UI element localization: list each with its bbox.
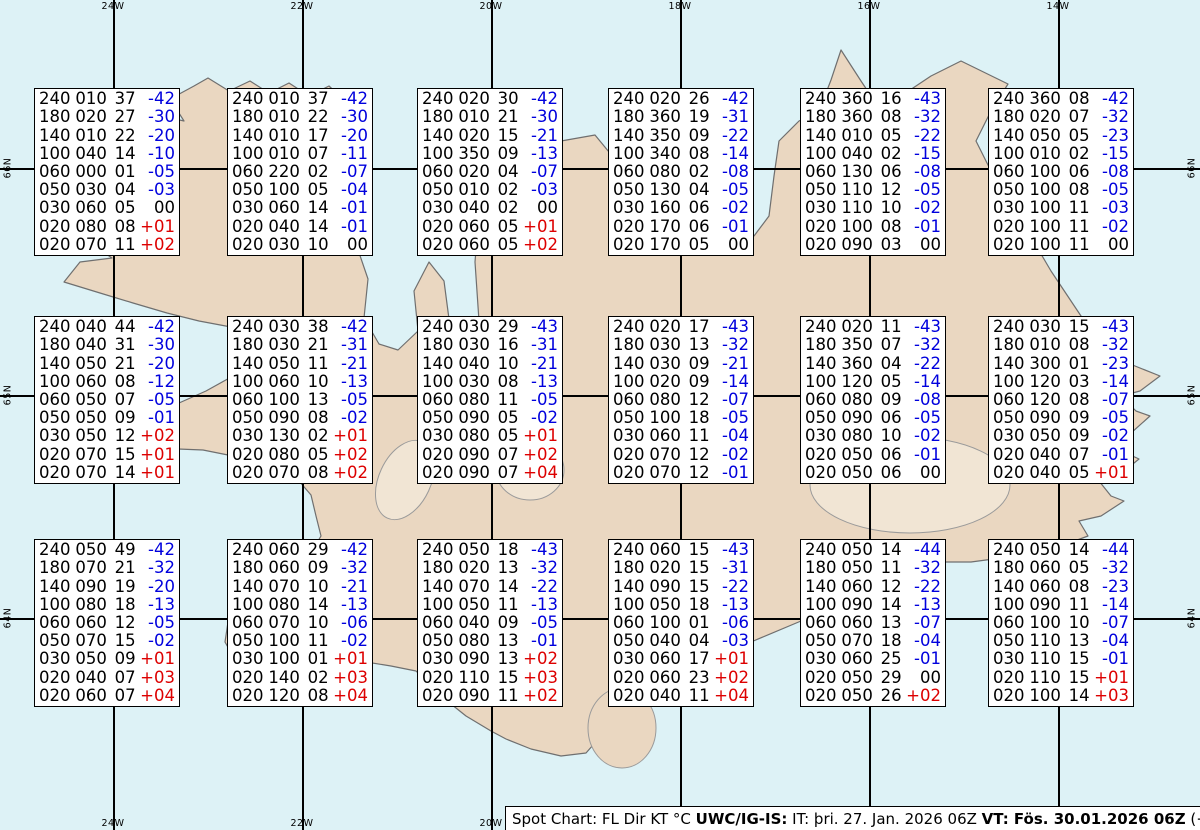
wind-speed-kt: 13 <box>305 391 329 409</box>
flight-level: 140 <box>39 578 72 596</box>
spot-row: 02009007+04 <box>422 464 558 482</box>
spot-row: 02007012-02 <box>613 446 749 464</box>
wind-speed-kt: 11 <box>1066 236 1090 254</box>
wind-direction: 090 <box>268 409 301 427</box>
spot-row: 14006012-22 <box>805 578 941 596</box>
wind-speed-kt: 15 <box>1066 650 1090 668</box>
temperature-c: 00 <box>905 464 941 482</box>
spot-row: 18005011-32 <box>805 559 941 577</box>
wind-speed-kt: 08 <box>1066 578 1090 596</box>
flight-level: 030 <box>613 199 646 217</box>
wind-speed-kt: 09 <box>1066 409 1090 427</box>
spot-row: 14007010-21 <box>232 578 368 596</box>
flight-level: 060 <box>232 614 265 632</box>
spot-row: 05007018-04 <box>805 632 941 650</box>
temperature-c: -02 <box>332 409 368 427</box>
spot-row: 06012008-07 <box>993 391 1129 409</box>
spot-row: 02006023+02 <box>613 669 749 687</box>
spot-row: 18036008-32 <box>805 108 941 126</box>
spot-row: 05009009-05 <box>993 409 1129 427</box>
wind-direction: 080 <box>458 391 491 409</box>
wind-direction: 170 <box>649 236 682 254</box>
spot-row: 05001002-03 <box>422 181 558 199</box>
flight-level: 100 <box>993 145 1026 163</box>
spot-row: 24004044-42 <box>39 318 175 336</box>
temperature-c: -30 <box>332 108 368 126</box>
flight-level: 140 <box>422 355 455 373</box>
wind-speed-kt: 06 <box>878 446 902 464</box>
wind-direction: 070 <box>649 464 682 482</box>
spot-row: 14005005-23 <box>993 127 1129 145</box>
spot-row: 02005006-01 <box>805 446 941 464</box>
wind-direction: 070 <box>458 578 491 596</box>
wind-speed-kt: 19 <box>112 578 136 596</box>
wind-direction: 060 <box>268 559 301 577</box>
wind-speed-kt: 01 <box>1066 355 1090 373</box>
spot-row: 05010018-05 <box>613 409 749 427</box>
spot-row: 24002017-43 <box>613 318 749 336</box>
spot-box-r3-c2: 24006029-4218006009-3214007010-211000801… <box>227 539 373 707</box>
spot-box-r3-c1: 24005049-4218007021-3214009019-201000801… <box>34 539 180 707</box>
wind-speed-kt: 11 <box>112 236 136 254</box>
spot-row: 02007011+02 <box>39 236 175 254</box>
wind-speed-kt: 15 <box>686 578 710 596</box>
wind-direction: 350 <box>458 145 491 163</box>
footer-segment-1: Spot Chart: FL Dir KT °C <box>512 810 696 828</box>
wind-speed-kt: 07 <box>1066 108 1090 126</box>
spot-row: 02011015+03 <box>422 669 558 687</box>
spot-row: 05009006-05 <box>805 409 941 427</box>
wind-speed-kt: 06 <box>686 199 710 217</box>
wind-speed-kt: 08 <box>305 687 329 705</box>
flight-level: 180 <box>993 559 1026 577</box>
temperature-c: +01 <box>139 446 175 464</box>
spot-box-r1-c6: 24036008-4218002007-3214005005-231000100… <box>988 88 1134 256</box>
wind-direction: 070 <box>75 559 108 577</box>
wind-direction: 110 <box>1029 669 1062 687</box>
temperature-c: -04 <box>1093 632 1129 650</box>
spot-row: 24003015-43 <box>993 318 1129 336</box>
flight-level: 100 <box>613 145 646 163</box>
flight-level: 180 <box>422 336 455 354</box>
wind-speed-kt: 07 <box>1066 446 1090 464</box>
wind-speed-kt: 05 <box>1066 559 1090 577</box>
wind-speed-kt: 21 <box>112 559 136 577</box>
footer-segment-2: UWC/IG-IS: <box>696 810 788 828</box>
wind-direction: 060 <box>1029 559 1062 577</box>
wind-speed-kt: 10 <box>495 355 519 373</box>
temperature-c: -21 <box>522 355 558 373</box>
wind-speed-kt: 29 <box>305 541 329 559</box>
spot-row: 02008005+02 <box>232 446 368 464</box>
spot-row: 18002013-32 <box>422 559 558 577</box>
wind-speed-kt: 13 <box>495 650 519 668</box>
wind-direction: 010 <box>841 127 874 145</box>
temperature-c: -07 <box>1093 614 1129 632</box>
flight-level: 180 <box>422 108 455 126</box>
temperature-c: -43 <box>713 318 749 336</box>
wind-speed-kt: 14 <box>878 596 902 614</box>
spot-row: 18006009-32 <box>232 559 368 577</box>
temperature-c: -32 <box>332 559 368 577</box>
temperature-c: -42 <box>139 541 175 559</box>
wind-speed-kt: 05 <box>495 409 519 427</box>
temperature-c: -43 <box>522 318 558 336</box>
spot-row: 02006005+02 <box>422 236 558 254</box>
spot-row: 24005049-42 <box>39 541 175 559</box>
flight-level: 100 <box>993 596 1026 614</box>
flight-level: 050 <box>39 409 72 427</box>
wind-speed-kt: 21 <box>495 108 519 126</box>
flight-level: 030 <box>39 650 72 668</box>
wind-direction: 130 <box>841 163 874 181</box>
spot-row: 03006017+01 <box>613 650 749 668</box>
flight-level: 180 <box>39 336 72 354</box>
wind-speed-kt: 10 <box>305 578 329 596</box>
spot-box-r3-c5: 24005014-4418005011-3214006012-221000901… <box>800 539 946 707</box>
spot-box-r2-c4: 24002017-4318003013-3214003009-211000200… <box>608 316 754 484</box>
temperature-c: +01 <box>332 427 368 445</box>
wind-direction: 080 <box>649 163 682 181</box>
wind-direction: 080 <box>649 391 682 409</box>
wind-direction: 090 <box>458 409 491 427</box>
wind-speed-kt: 15 <box>112 446 136 464</box>
temperature-c: -43 <box>522 541 558 559</box>
temperature-c: -05 <box>522 391 558 409</box>
temperature-c: +01 <box>522 427 558 445</box>
flight-level: 020 <box>613 236 646 254</box>
flight-level: 030 <box>422 199 455 217</box>
wind-direction: 010 <box>268 145 301 163</box>
wind-speed-kt: 44 <box>112 318 136 336</box>
spot-row: 03005009+01 <box>39 650 175 668</box>
wind-speed-kt: 09 <box>112 650 136 668</box>
flight-level: 180 <box>613 559 646 577</box>
wind-direction: 080 <box>268 596 301 614</box>
spot-row: 24006015-43 <box>613 541 749 559</box>
wind-speed-kt: 02 <box>878 145 902 163</box>
temperature-c: +02 <box>522 236 558 254</box>
wind-direction: 110 <box>1029 632 1062 650</box>
wind-speed-kt: 13 <box>878 614 902 632</box>
spot-row: 06010013-05 <box>232 391 368 409</box>
wind-speed-kt: 01 <box>686 614 710 632</box>
spot-row: 02004007-01 <box>993 446 1129 464</box>
flight-level: 020 <box>422 669 455 687</box>
temperature-c: -04 <box>713 427 749 445</box>
wind-speed-kt: 05 <box>1066 464 1090 482</box>
wind-speed-kt: 11 <box>878 318 902 336</box>
flight-level: 020 <box>232 446 265 464</box>
wind-direction: 070 <box>75 464 108 482</box>
spot-row: 14001017-20 <box>232 127 368 145</box>
temperature-c: -10 <box>139 145 175 163</box>
temperature-c: -20 <box>139 578 175 596</box>
spot-row: 10001007-11 <box>232 145 368 163</box>
temperature-c: -32 <box>1093 559 1129 577</box>
flight-level: 100 <box>422 373 455 391</box>
wind-direction: 100 <box>268 632 301 650</box>
spot-row: 10012003-14 <box>993 373 1129 391</box>
temperature-c: -03 <box>139 181 175 199</box>
temperature-c: -21 <box>713 355 749 373</box>
wind-direction: 050 <box>649 596 682 614</box>
wind-speed-kt: 04 <box>686 632 710 650</box>
spot-row: 18001008-32 <box>993 336 1129 354</box>
flight-level: 020 <box>993 218 1026 236</box>
flight-level: 030 <box>422 427 455 445</box>
spot-row: 24005014-44 <box>805 541 941 559</box>
temperature-c: -07 <box>522 163 558 181</box>
top-longitude-label-24W: 24W <box>102 1 125 12</box>
wind-direction: 020 <box>1029 108 1062 126</box>
flight-level: 020 <box>993 446 1026 464</box>
wind-direction: 060 <box>75 687 108 705</box>
flight-level: 050 <box>232 632 265 650</box>
temperature-c: -22 <box>905 578 941 596</box>
temperature-c: -01 <box>713 464 749 482</box>
spot-row: 10008014-13 <box>232 596 368 614</box>
flight-level: 240 <box>805 90 838 108</box>
spot-row: 10005018-13 <box>613 596 749 614</box>
temperature-c: +02 <box>522 687 558 705</box>
wind-speed-kt: 02 <box>305 163 329 181</box>
wind-direction: 040 <box>458 355 491 373</box>
wind-speed-kt: 25 <box>878 650 902 668</box>
temperature-c: -13 <box>332 596 368 614</box>
wind-speed-kt: 12 <box>686 391 710 409</box>
wind-direction: 020 <box>649 90 682 108</box>
flight-level: 020 <box>232 236 265 254</box>
wind-speed-kt: 49 <box>112 541 136 559</box>
wind-direction: 050 <box>75 409 108 427</box>
temperature-c: -14 <box>713 145 749 163</box>
temperature-c: -14 <box>905 373 941 391</box>
temperature-c: -22 <box>905 355 941 373</box>
wind-direction: 100 <box>1029 163 1062 181</box>
wind-speed-kt: 26 <box>878 687 902 705</box>
spot-row: 02010008-01 <box>805 218 941 236</box>
flight-level: 060 <box>613 391 646 409</box>
wind-speed-kt: 23 <box>686 669 710 687</box>
wind-direction: 060 <box>649 650 682 668</box>
spot-box-r2-c5: 24002011-4318035007-3214036004-221001200… <box>800 316 946 484</box>
flight-level: 020 <box>422 446 455 464</box>
flight-level: 050 <box>232 409 265 427</box>
spot-row: 18002015-31 <box>613 559 749 577</box>
wind-speed-kt: 08 <box>305 464 329 482</box>
wind-direction: 140 <box>268 669 301 687</box>
wind-direction: 090 <box>841 409 874 427</box>
flight-level: 020 <box>805 669 838 687</box>
flight-level: 020 <box>232 218 265 236</box>
wind-speed-kt: 11 <box>305 355 329 373</box>
flight-level: 100 <box>39 596 72 614</box>
wind-speed-kt: 10 <box>878 427 902 445</box>
temperature-c: +02 <box>522 650 558 668</box>
wind-direction: 090 <box>649 578 682 596</box>
flight-level: 140 <box>613 355 646 373</box>
temperature-c: -01 <box>139 409 175 427</box>
wind-speed-kt: 06 <box>1066 163 1090 181</box>
wind-speed-kt: 07 <box>112 669 136 687</box>
temperature-c: -12 <box>139 373 175 391</box>
wind-speed-kt: 05 <box>878 127 902 145</box>
wind-direction: 020 <box>458 163 491 181</box>
wind-direction: 000 <box>75 163 108 181</box>
temperature-c: -22 <box>713 578 749 596</box>
wind-speed-kt: 11 <box>1066 596 1090 614</box>
flight-level: 180 <box>232 108 265 126</box>
flight-level: 030 <box>993 427 1026 445</box>
wind-speed-kt: 05 <box>112 199 136 217</box>
spot-row: 06006013-07 <box>805 614 941 632</box>
wind-speed-kt: 08 <box>686 145 710 163</box>
wind-speed-kt: 31 <box>112 336 136 354</box>
spot-row: 14007014-22 <box>422 578 558 596</box>
spot-row: 02006005+01 <box>422 218 558 236</box>
wind-direction: 020 <box>649 373 682 391</box>
temperature-c: +02 <box>332 446 368 464</box>
temperature-c: -23 <box>1093 127 1129 145</box>
temperature-c: -13 <box>522 373 558 391</box>
flight-level: 060 <box>422 163 455 181</box>
spot-box-r1-c1: 24001037-4218002027-3014001022-201000401… <box>34 88 180 256</box>
temperature-c: -02 <box>1093 218 1129 236</box>
wind-direction: 040 <box>75 318 108 336</box>
wind-direction: 120 <box>268 687 301 705</box>
spot-row: 0200301000 <box>232 236 368 254</box>
flight-level: 020 <box>422 236 455 254</box>
wind-direction: 070 <box>75 632 108 650</box>
spot-row: 05010008-05 <box>993 181 1129 199</box>
wind-direction: 080 <box>841 427 874 445</box>
wind-direction: 030 <box>268 236 301 254</box>
wind-speed-kt: 14 <box>1066 541 1090 559</box>
temperature-c: +04 <box>332 687 368 705</box>
spot-row: 06006012-05 <box>39 614 175 632</box>
temperature-c: -42 <box>332 318 368 336</box>
footer-segment-4: VT: Fös. 30.01.2026 06Z <box>982 810 1186 828</box>
flight-level: 140 <box>232 127 265 145</box>
spot-box-r3-c3: 24005018-4318002013-3214007014-221000501… <box>417 539 563 707</box>
temperature-c: -13 <box>713 596 749 614</box>
flight-level: 100 <box>232 596 265 614</box>
wind-speed-kt: 08 <box>1066 336 1090 354</box>
flight-level: 140 <box>422 127 455 145</box>
flight-level: 240 <box>613 541 646 559</box>
temperature-c: 00 <box>522 199 558 217</box>
wind-speed-kt: 17 <box>686 650 710 668</box>
temperature-c: -30 <box>139 108 175 126</box>
wind-speed-kt: 07 <box>112 391 136 409</box>
flight-level: 240 <box>232 541 265 559</box>
wind-speed-kt: 18 <box>686 596 710 614</box>
wind-direction: 020 <box>649 318 682 336</box>
wind-speed-kt: 19 <box>686 108 710 126</box>
flight-level: 240 <box>422 90 455 108</box>
wind-direction: 070 <box>841 632 874 650</box>
spot-row: 14004010-21 <box>422 355 558 373</box>
wind-direction: 060 <box>841 650 874 668</box>
temperature-c: -04 <box>332 181 368 199</box>
wind-direction: 040 <box>75 669 108 687</box>
wind-direction: 060 <box>458 218 491 236</box>
spot-box-r1-c2: 24001037-4218001022-3014001017-201000100… <box>227 88 373 256</box>
wind-direction: 100 <box>841 218 874 236</box>
spot-row: 14002015-21 <box>422 127 558 145</box>
spot-row: 18001021-30 <box>422 108 558 126</box>
temperature-c: -04 <box>905 632 941 650</box>
wind-speed-kt: 04 <box>112 181 136 199</box>
temperature-c: -11 <box>332 145 368 163</box>
wind-speed-kt: 01 <box>305 650 329 668</box>
temperature-c: +01 <box>139 650 175 668</box>
wind-direction: 030 <box>458 336 491 354</box>
spot-row: 18004031-30 <box>39 336 175 354</box>
wind-speed-kt: 04 <box>878 355 902 373</box>
temperature-c: -01 <box>713 218 749 236</box>
wind-speed-kt: 05 <box>495 236 519 254</box>
flight-level: 020 <box>39 464 72 482</box>
spot-row: 14009019-20 <box>39 578 175 596</box>
right-latitude-label-64N: 64N <box>1187 608 1198 629</box>
flight-level: 140 <box>232 578 265 596</box>
temperature-c: -08 <box>905 163 941 181</box>
wind-direction: 030 <box>1029 318 1062 336</box>
flight-level: 240 <box>39 90 72 108</box>
temperature-c: -42 <box>332 90 368 108</box>
wind-speed-kt: 09 <box>112 409 136 427</box>
temperature-c: -42 <box>713 90 749 108</box>
flight-level: 050 <box>39 632 72 650</box>
top-longitude-label-16W: 16W <box>858 1 881 12</box>
wind-direction: 130 <box>268 427 301 445</box>
wind-speed-kt: 11 <box>1066 218 1090 236</box>
flight-level: 100 <box>805 373 838 391</box>
spot-row: 05009008-02 <box>232 409 368 427</box>
temperature-c: -03 <box>522 181 558 199</box>
temperature-c: 00 <box>332 236 368 254</box>
spot-row: 0200500600 <box>805 464 941 482</box>
wind-speed-kt: 07 <box>495 464 519 482</box>
wind-speed-kt: 02 <box>495 181 519 199</box>
flight-level: 020 <box>805 446 838 464</box>
wind-direction: 050 <box>841 541 874 559</box>
spot-row: 03006025-01 <box>805 650 941 668</box>
wind-speed-kt: 09 <box>305 559 329 577</box>
spot-row: 02007015+01 <box>39 446 175 464</box>
wind-direction: 070 <box>268 464 301 482</box>
wind-speed-kt: 11 <box>305 632 329 650</box>
wind-speed-kt: 06 <box>878 409 902 427</box>
wind-direction: 080 <box>458 632 491 650</box>
wind-direction: 100 <box>1029 614 1062 632</box>
temperature-c: +01 <box>139 218 175 236</box>
wind-speed-kt: 09 <box>495 614 519 632</box>
wind-direction: 070 <box>75 446 108 464</box>
bottom-longitude-label-24W: 24W <box>102 818 125 829</box>
spot-row: 03010011-03 <box>993 199 1129 217</box>
temperature-c: -23 <box>1093 355 1129 373</box>
flight-level: 030 <box>232 650 265 668</box>
spot-row: 24003029-43 <box>422 318 558 336</box>
flight-level: 100 <box>805 145 838 163</box>
temperature-c: -22 <box>905 127 941 145</box>
spot-row: 05005009-01 <box>39 409 175 427</box>
wind-speed-kt: 09 <box>686 127 710 145</box>
flight-level: 100 <box>422 596 455 614</box>
